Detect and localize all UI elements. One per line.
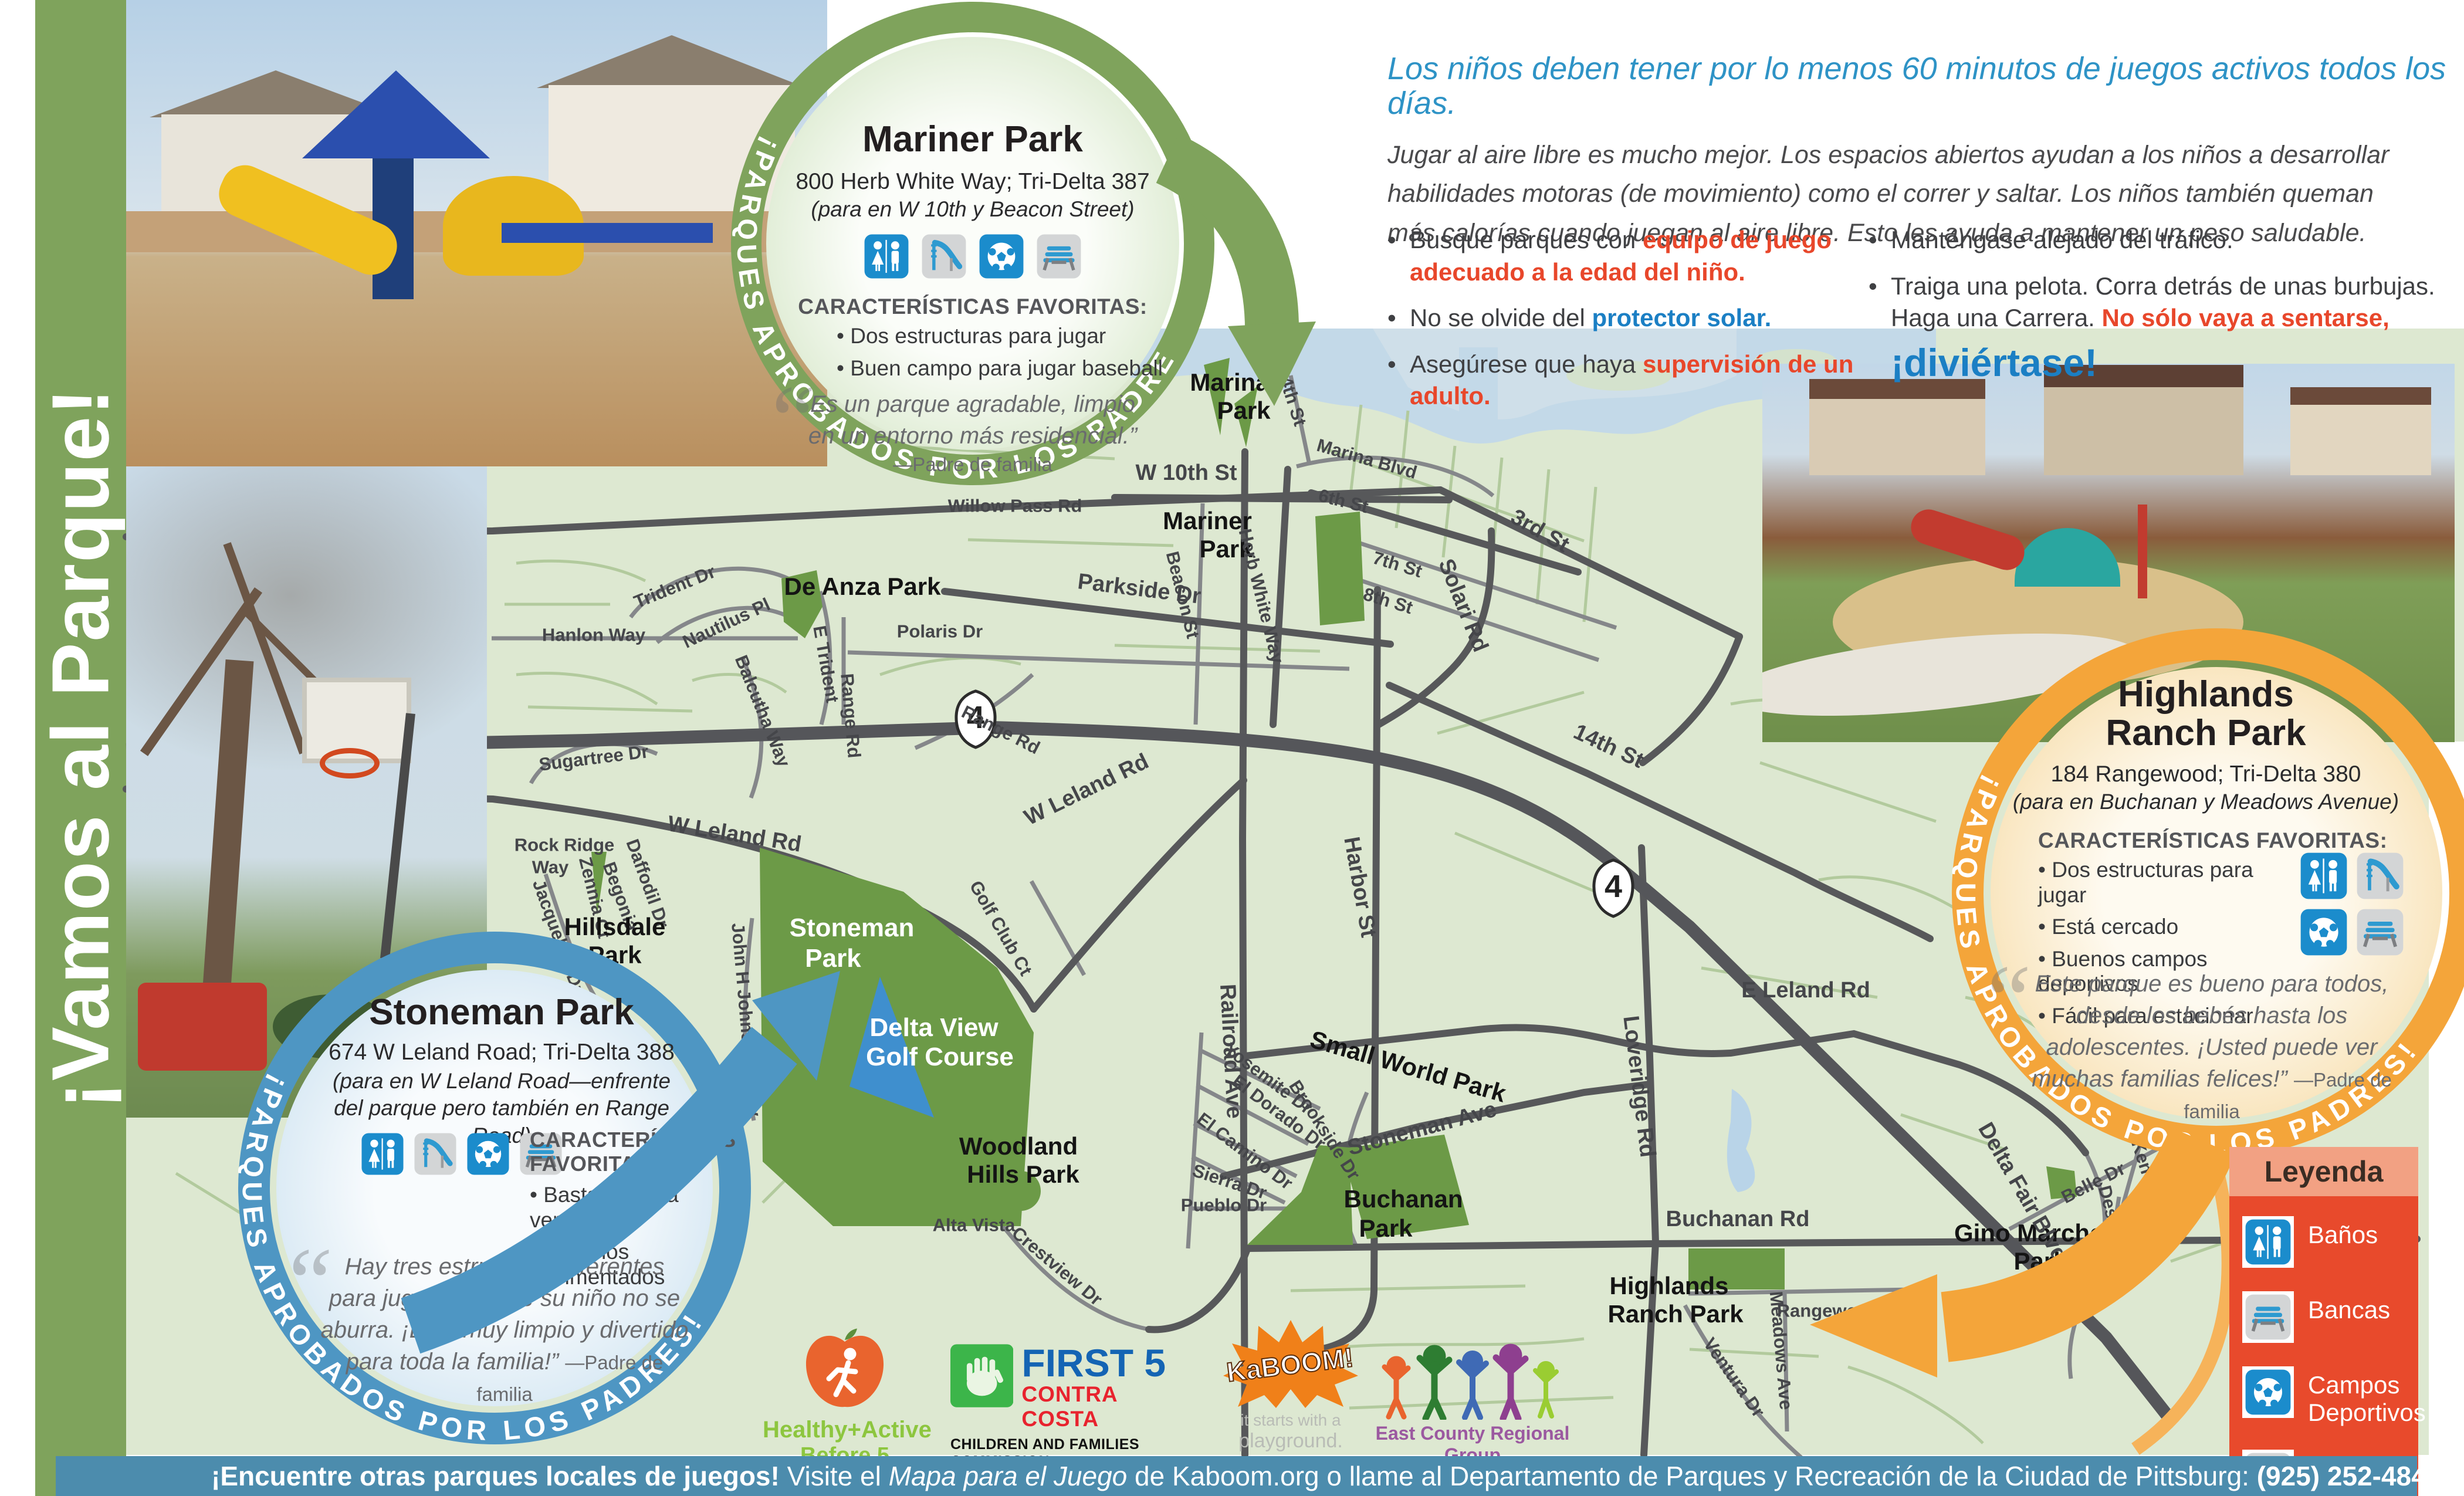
intro-heading: Los niños deben tener por lo menos 60 mi…	[1387, 52, 2452, 121]
legend-item: Campos Deportivos	[2242, 1366, 2405, 1426]
kaboom-burst-icon: KaBOOM!	[1223, 1320, 1358, 1408]
legend-item: Baños	[2242, 1216, 2405, 1268]
footer-text: ¡Encuentre otras parques locales de jueg…	[56, 1460, 2441, 1492]
tips-left-column: Busque parques con equipo de juego adecu…	[1387, 224, 1863, 427]
legend-title: Leyenda	[2229, 1147, 2418, 1196]
legend-item: Bancas	[2242, 1291, 2405, 1343]
tip-item: No se olvide del protector solar.	[1387, 302, 1863, 334]
hand-icon	[950, 1343, 1013, 1408]
brochure-page: ¡Vamos al Parque!	[0, 0, 2464, 1496]
have-fun-text: ¡diviértase!	[1891, 338, 2461, 388]
legend-panel: Leyenda Baños Bancas Campos Deportivos E…	[2229, 1147, 2418, 1496]
sports-icon	[2242, 1366, 2294, 1418]
tip-item: Manténgase alejado del tráfico.	[1869, 224, 2461, 256]
restroom-icon	[2242, 1216, 2294, 1268]
kaboom-logo: KaBOOM! it starts with a playground.	[1203, 1320, 1379, 1453]
tips-right-column: Manténgase alejado del tráfico. Traiga u…	[1869, 224, 2461, 402]
orange-arrow	[1810, 1141, 2229, 1449]
tip-item: Asegúrese que haya supervisión de un adu…	[1387, 348, 1863, 412]
family-figures-icon	[1376, 1343, 1569, 1420]
blue-arrow	[411, 971, 840, 1326]
green-arrow	[1167, 158, 1316, 406]
tip-item: Busque parques con equipo de juego adecu…	[1387, 224, 1863, 288]
footer-bar: ¡Encuentre otras parques locales de jueg…	[56, 1456, 2417, 1496]
tip-item: Traiga una pelota. Corra detrás de unas …	[1869, 270, 2461, 388]
ecrg-logo: East County Regional Group	[1367, 1343, 1578, 1466]
bench-icon	[2242, 1291, 2294, 1343]
intro-section: Los niños deben tener por lo menos 60 mi…	[1387, 52, 2452, 253]
healthy-active-logo: Healthy+Active Before 5	[763, 1326, 927, 1468]
apple-runner-icon	[801, 1326, 889, 1414]
first5-logo: FIRST 5 CONTRA COSTA CHILDREN AND FAMILI…	[950, 1343, 1197, 1470]
